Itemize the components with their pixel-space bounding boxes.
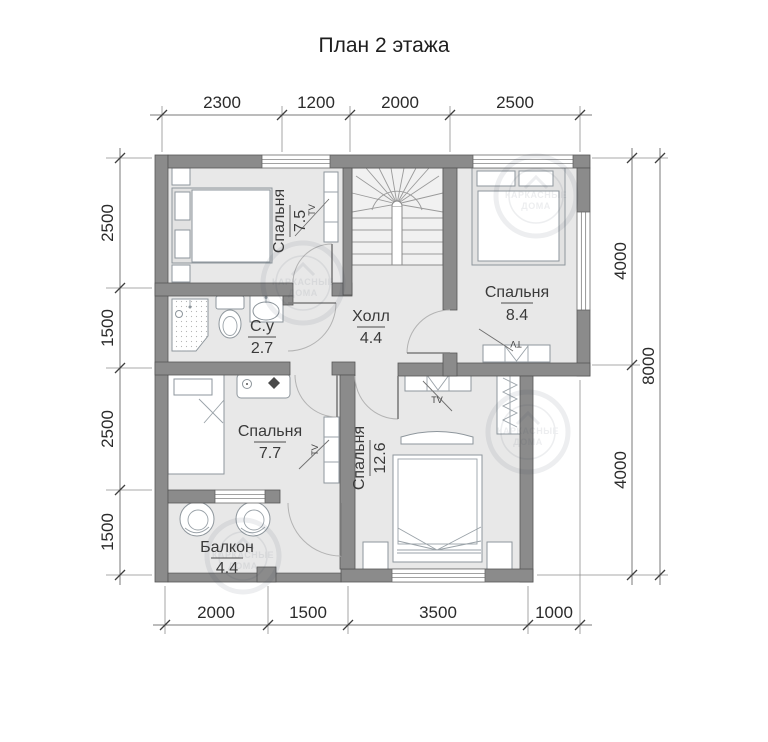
svg-text:Холл: Холл (352, 308, 390, 325)
wall-balcony-north-pier (265, 490, 280, 503)
dim-label: 4000 (611, 451, 630, 489)
bed-double (393, 455, 482, 562)
wall-stub (332, 362, 355, 375)
svg-text:12.6: 12.6 (372, 442, 389, 473)
wall-top (168, 155, 262, 168)
svg-text:8.4: 8.4 (506, 307, 528, 324)
svg-text:4.4: 4.4 (360, 330, 382, 347)
svg-text:Балкон: Балкон (200, 539, 254, 556)
dim-label: 1000 (535, 603, 573, 622)
window-right-bedroom2 (577, 212, 590, 310)
wall-bedroom2-south (398, 363, 590, 376)
wall-bathroom-south (155, 362, 290, 375)
pillow (175, 192, 190, 220)
svg-text:КАРКАСНЫЕ: КАРКАСНЫЕ (497, 426, 559, 436)
dimension-top: 2300 1200 2000 2500 (150, 93, 592, 152)
pillow (175, 230, 190, 258)
wall-bedroom4-east (520, 376, 533, 582)
dim-label: 1500 (98, 513, 117, 551)
window-balcony (215, 490, 265, 503)
dim-label: 2500 (98, 410, 117, 448)
svg-text:КАРКАСНЫЕ: КАРКАСНЫЕ (505, 190, 567, 200)
svg-text:2.7: 2.7 (251, 340, 273, 357)
toilet-bowl (219, 310, 241, 338)
wall-top (573, 155, 590, 168)
svg-text:7.7: 7.7 (259, 445, 281, 462)
svg-text:7.5: 7.5 (292, 210, 309, 232)
tv-label: TV (510, 339, 522, 349)
svg-text:ДОМА: ДОМА (513, 437, 542, 447)
dim-label: 4000 (611, 242, 630, 280)
svg-text:Спальня: Спальня (238, 423, 302, 440)
dim-label: 2000 (197, 603, 235, 622)
dim-label: 2500 (98, 204, 117, 242)
svg-text:4.4: 4.4 (216, 560, 238, 577)
wall-stair-east (443, 168, 457, 310)
nightstand (487, 542, 512, 570)
dim-label: 2500 (496, 93, 534, 112)
mattress (192, 190, 270, 262)
svg-text:КАРКАСНЫЕ: КАРКАСНЫЕ (272, 277, 334, 287)
pillow (174, 379, 212, 395)
window-bottom-bedroom4 (392, 569, 485, 582)
dim-label: 1500 (289, 603, 327, 622)
floor-plan-drawing: План 2 этажа TV (0, 0, 768, 742)
armchair (180, 502, 214, 536)
svg-text:Спальня: Спальня (485, 284, 549, 301)
wall-balcony-north (168, 490, 215, 503)
window-top-bedroom1 (262, 155, 330, 168)
nightstand (172, 265, 190, 282)
dim-label: 3500 (419, 603, 457, 622)
tv-cabinet (405, 374, 471, 391)
dim-label: 2000 (381, 93, 419, 112)
shower-drain (176, 311, 183, 318)
svg-text:ДОМА: ДОМА (521, 201, 550, 211)
nightstand (363, 542, 388, 570)
wall-door-stub (443, 353, 457, 376)
tv-label: TV (431, 395, 443, 405)
tv-cabinet (324, 417, 339, 483)
svg-text:Спальня: Спальня (351, 426, 368, 490)
floor-plan-page: План 2 этажа TV (0, 0, 768, 742)
page-title: План 2 этажа (318, 34, 449, 57)
dimension-left: 2500 1500 2500 1500 (98, 148, 152, 585)
toilet-tank (216, 296, 244, 309)
stair-spine (392, 206, 402, 265)
tv-cabinet (324, 172, 338, 242)
svg-text:Спальня: Спальня (271, 189, 288, 253)
dim-label: 2300 (203, 93, 241, 112)
nightstand (172, 168, 190, 185)
dim-label: 1200 (297, 93, 335, 112)
dim-label: 8000 (639, 347, 658, 385)
dim-label: 1500 (98, 309, 117, 347)
wall-right (577, 168, 590, 212)
svg-text:С.у: С.у (250, 318, 274, 335)
staircase (352, 168, 443, 265)
wall-top (330, 155, 473, 168)
tv-label: TV (310, 444, 320, 456)
svg-text:ДОМА: ДОМА (288, 288, 317, 298)
